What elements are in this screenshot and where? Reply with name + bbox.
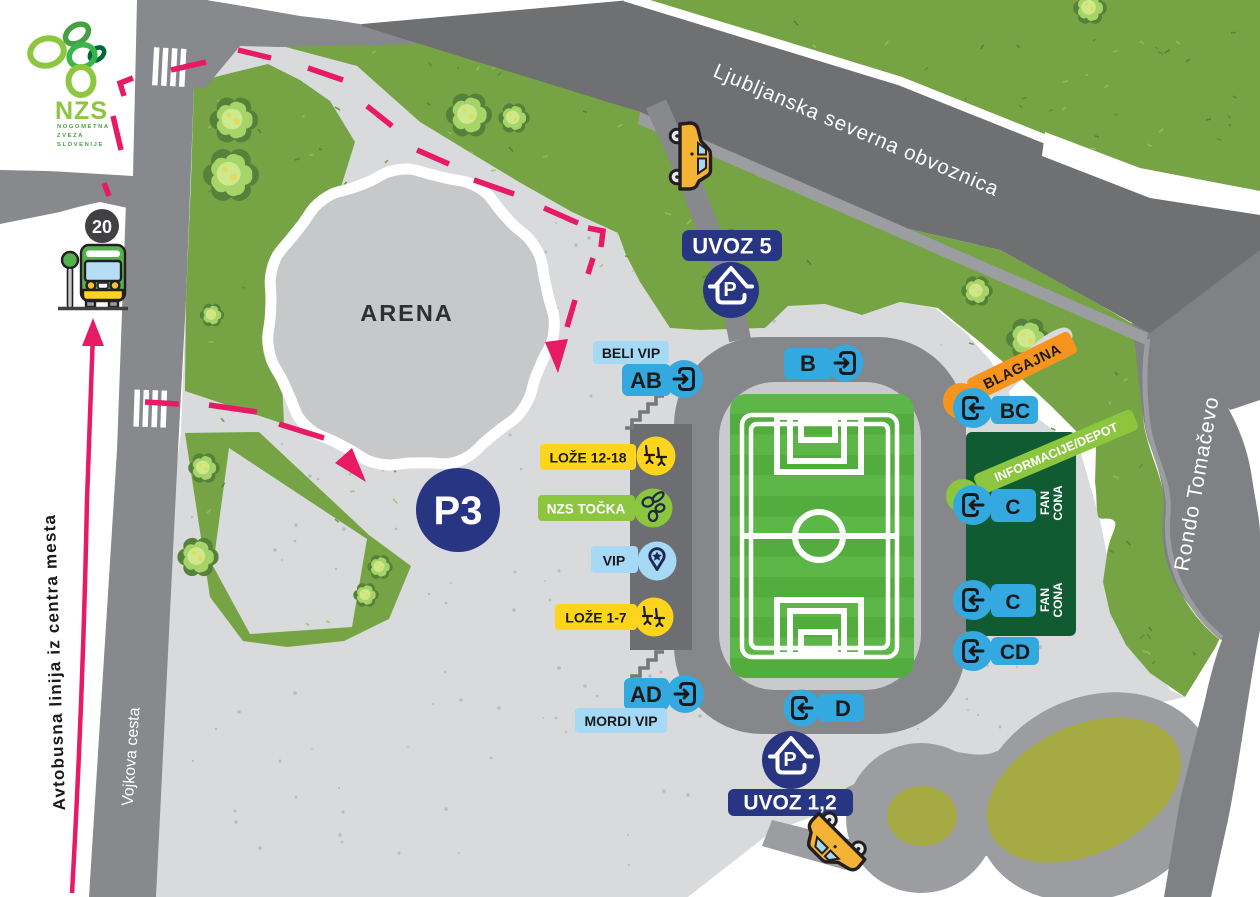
svg-text:UVOZ 1,2: UVOZ 1,2 (743, 792, 836, 815)
svg-text:LOŽE 12-18: LOŽE 12-18 (549, 449, 626, 466)
svg-text:20: 20 (92, 217, 112, 237)
svg-text:UVOZ 5: UVOZ 5 (692, 234, 771, 259)
svg-text:AD: AD (630, 682, 662, 707)
svg-text:D: D (835, 696, 851, 721)
svg-text:LOŽE 1-7: LOŽE 1-7 (565, 609, 627, 626)
svg-text:BC: BC (1000, 400, 1030, 423)
svg-text:BELI VIP: BELI VIP (602, 345, 660, 361)
svg-text:C: C (1005, 496, 1020, 519)
svg-text:AB: AB (630, 368, 662, 393)
svg-text:P3: P3 (434, 489, 483, 533)
svg-text:VIP: VIP (603, 553, 626, 569)
svg-text:ARENA: ARENA (360, 300, 454, 326)
svg-text:NZS TOČKA: NZS TOČKA (547, 502, 626, 517)
svg-text:NZS: NZS (55, 97, 108, 125)
svg-text:C: C (1005, 591, 1020, 614)
svg-text:P: P (723, 279, 736, 301)
svg-text:B: B (800, 351, 816, 376)
svg-text:CD: CD (1000, 641, 1030, 664)
svg-text:P: P (783, 749, 796, 771)
svg-text:MORDI VIP: MORDI VIP (584, 713, 657, 729)
